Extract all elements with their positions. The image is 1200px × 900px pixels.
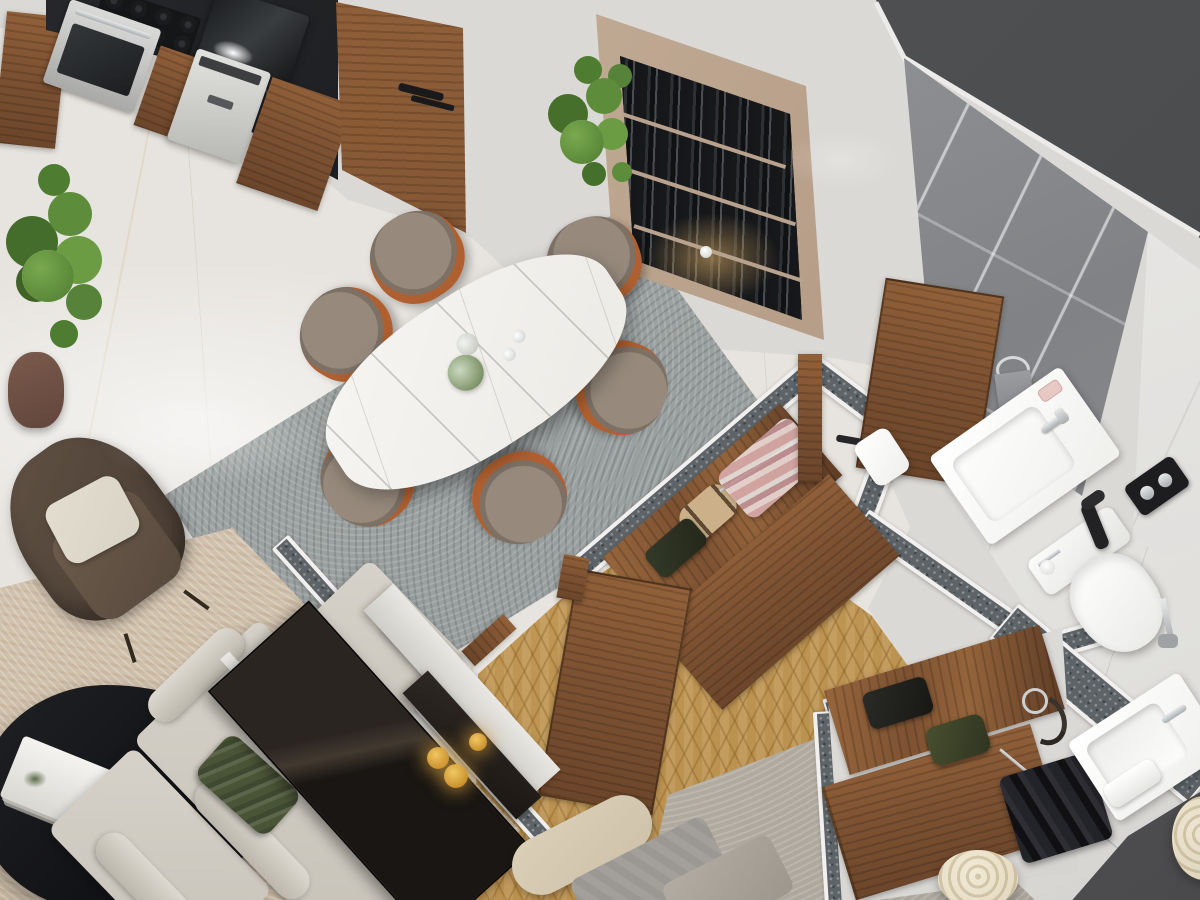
amber-candle-holder	[427, 747, 449, 769]
amber-candle-holder	[469, 733, 487, 751]
armchair-leg	[183, 589, 210, 610]
drinking-glass	[510, 327, 528, 345]
drinking-glass	[500, 346, 518, 364]
book-decor-sprig	[20, 768, 50, 790]
belt-buckle-chrome	[1022, 688, 1048, 714]
floor-reflection	[60, 380, 360, 500]
dishwasher-vent	[207, 94, 234, 110]
plant-foliage	[22, 250, 74, 302]
decor-cup	[700, 246, 712, 258]
apartment-render	[0, 0, 1200, 900]
amber-candle-holder	[444, 764, 468, 788]
oven-window	[56, 23, 145, 97]
glass-bottle	[452, 329, 482, 359]
plant-pot-brown	[8, 352, 64, 428]
floor-reflection	[760, 120, 920, 200]
bathroom-door-jamb	[798, 354, 822, 482]
soap-dish-pink	[1036, 378, 1064, 403]
plant-foliage	[560, 120, 604, 164]
toilet-brush-base	[1158, 634, 1178, 648]
cream-pouf	[938, 850, 1018, 900]
flush-button	[1155, 471, 1174, 490]
armchair-leg	[124, 633, 137, 663]
flush-button	[1137, 483, 1156, 502]
toilet-paper-roll	[1040, 560, 1055, 575]
